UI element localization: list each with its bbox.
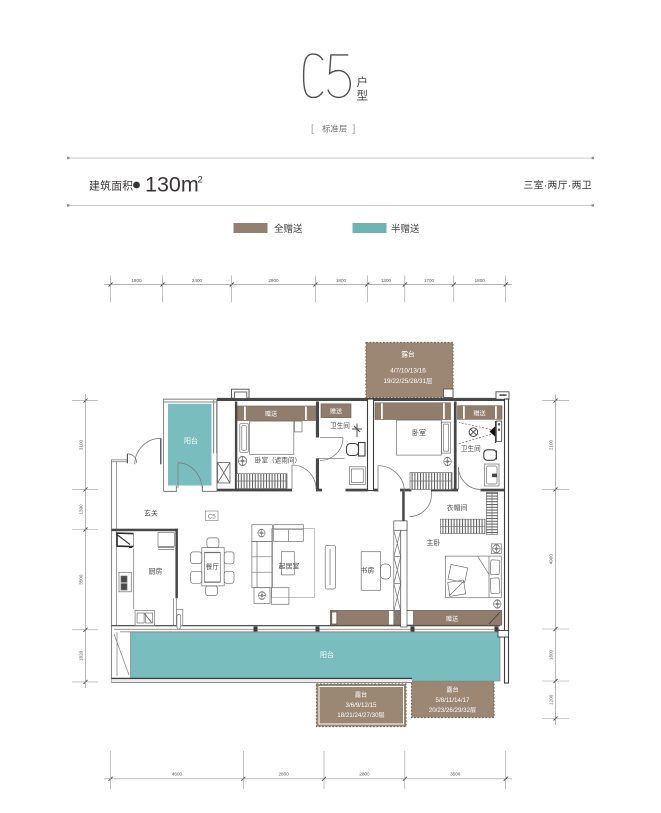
svg-text:20/23/26/29/32层: 20/23/26/29/32层 [429, 707, 476, 714]
svg-text:户: 户 [357, 75, 369, 89]
svg-text:1390: 1390 [79, 504, 84, 515]
svg-text:1600: 1600 [549, 649, 554, 660]
svg-text:1700: 1700 [424, 278, 435, 283]
svg-text:卧室: 卧室 [412, 428, 426, 437]
svg-text:2: 2 [198, 175, 203, 186]
svg-text:2800: 2800 [278, 772, 289, 777]
svg-text:赠送: 赠送 [473, 410, 486, 418]
svg-text:阳台: 阳台 [320, 650, 334, 659]
svg-text:卫生间: 卫生间 [330, 421, 350, 430]
svg-text:1800: 1800 [336, 278, 347, 283]
svg-text:书房: 书房 [361, 566, 375, 575]
svg-text:半赠送: 半赠送 [391, 223, 420, 235]
svg-text:3100: 3100 [79, 439, 84, 450]
svg-text:赠送: 赠送 [265, 410, 278, 418]
svg-text:19/22/25/28/31层: 19/22/25/28/31层 [383, 377, 433, 385]
svg-text:衣帽间: 衣帽间 [447, 503, 468, 512]
svg-text:餐厅: 餐厅 [206, 562, 220, 571]
svg-text:标准层: 标准层 [322, 124, 347, 134]
svg-text:卧室（遮雨间）: 卧室（遮雨间） [255, 456, 301, 465]
svg-text:露台: 露台 [355, 691, 367, 699]
svg-text:2800: 2800 [359, 772, 370, 777]
svg-text:赠送: 赠送 [330, 408, 343, 416]
svg-text:主卧: 主卧 [427, 538, 441, 547]
svg-text:1800: 1800 [131, 278, 142, 283]
svg-text:3500: 3500 [79, 574, 84, 585]
svg-text:]: ] [353, 124, 356, 135]
svg-text:4900: 4900 [549, 554, 554, 565]
svg-text:[: [ [311, 124, 314, 135]
svg-text:玄关: 玄关 [144, 509, 158, 518]
svg-text:2100: 2100 [549, 439, 554, 450]
svg-text:1800: 1800 [475, 278, 486, 283]
svg-text:全赠送: 全赠送 [274, 223, 303, 235]
svg-text:2900: 2900 [268, 278, 279, 283]
svg-text:130m: 130m [145, 173, 199, 197]
svg-text:起居室: 起居室 [279, 562, 300, 571]
svg-text:卫生间: 卫生间 [461, 444, 481, 453]
svg-text:阳台: 阳台 [184, 436, 198, 445]
svg-text:建筑面积: 建筑面积 [89, 179, 133, 193]
svg-text:型: 型 [357, 89, 369, 103]
svg-text:厨房: 厨房 [149, 567, 163, 576]
svg-text:18/21/24/27/30层: 18/21/24/27/30层 [337, 712, 384, 719]
svg-text:露台: 露台 [401, 350, 415, 359]
svg-text:三室·两厅·两卫: 三室·两厅·两卫 [523, 179, 592, 192]
svg-text:3500: 3500 [450, 772, 461, 777]
svg-text:5/8/11/14/17: 5/8/11/14/17 [436, 697, 471, 704]
svg-text:1300: 1300 [381, 278, 392, 283]
svg-text:1200: 1200 [549, 694, 554, 705]
svg-text:3/6/9/12/15: 3/6/9/12/15 [346, 702, 378, 709]
svg-text:4/7/10/13/16: 4/7/10/13/16 [390, 368, 426, 375]
svg-text:1820: 1820 [79, 650, 84, 661]
svg-text:赠送: 赠送 [446, 615, 459, 623]
svg-text:C5: C5 [208, 515, 216, 521]
svg-text:4600: 4600 [172, 772, 183, 777]
svg-text:2400: 2400 [192, 278, 203, 283]
svg-text:露台: 露台 [446, 686, 458, 694]
